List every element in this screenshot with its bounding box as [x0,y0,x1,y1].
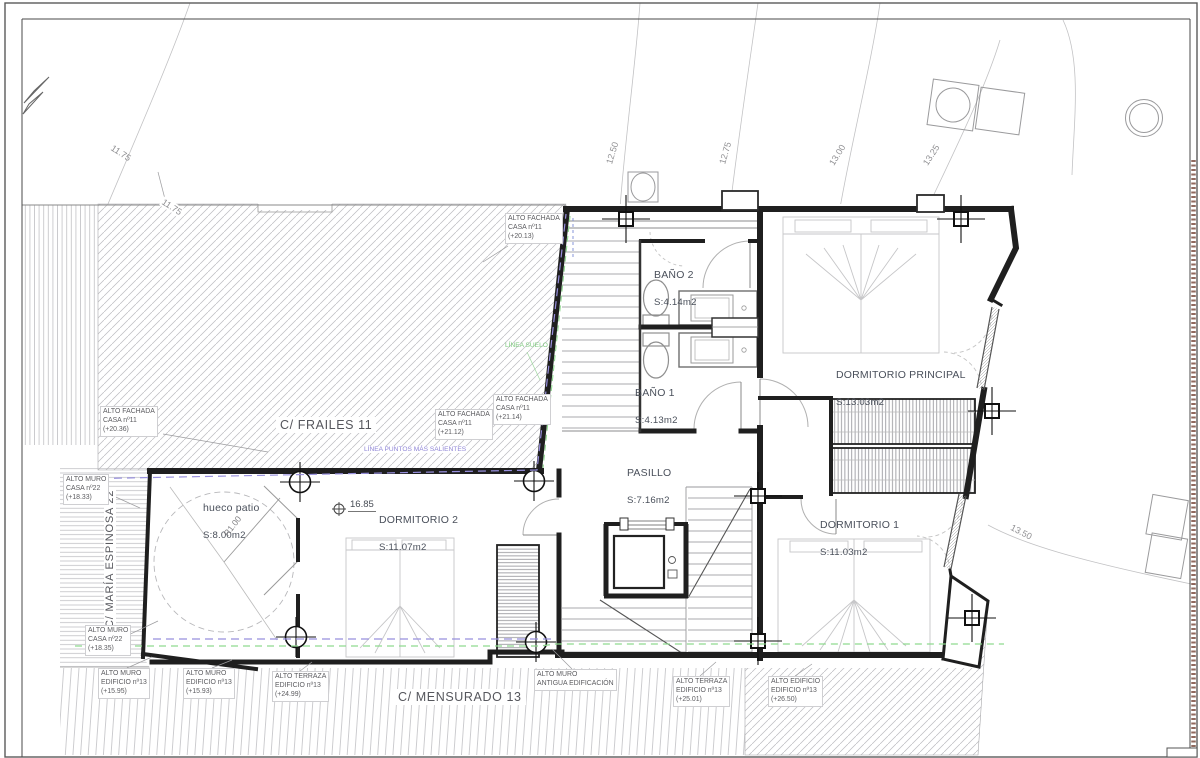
room-area: S:11.07m2 [379,542,458,555]
annotation-alto-muro-1833: ALTO MURO CASA nº22 (+18.33) [63,474,109,505]
floor-level-value: 16.85 [348,499,376,512]
annotation-alto-fachada-2114: ALTO FACHADA CASA nº11 (+21.14) [493,394,551,425]
room-name: DORMITORIO PRINCIPAL [836,369,966,383]
room-name: DORMITORIO 1 [820,519,899,533]
annotation-alto-fachada-2013: ALTO FACHADA CASA nº11 (+20.13) [505,213,563,244]
wall-niche [712,318,758,337]
annotation-alto-fachada-2036: ALTO FACHADA CASA nº11 (+20.36) [100,406,158,437]
street-label-mensurado: C/ MENSURADO 13 [394,689,526,705]
street-label-maria-espinosa: C/ MARÍA ESPINOSA 22 [104,487,116,631]
room-area: S:4.14m2 [654,297,697,310]
room-area: S:4.13m2 [635,415,678,428]
refline-label-suelo: LÍNEA SUELO [505,342,548,349]
room-area: S:13.03m2 [836,397,966,410]
room-area: S:7.16m2 [627,495,671,508]
room-name: PASILLO [627,467,671,481]
annotation-alto-muro-antigua: ALTO MURO ANTIGUA EDIFICACIÓN [534,669,617,691]
plan-linework [0,0,1200,758]
floor-plan-sheet: 11.75 11.75 12.50 12.75 13.00 13.25 13.5… [0,0,1200,758]
annotation-alto-muro-1835: ALTO MURO CASA nº22 (+18.35) [85,625,131,656]
annotation-alto-fachada-2112: ALTO FACHADA CASA nº11 (+21.12) [435,409,493,440]
room-label-pasillo: PASILLO S:7.16m2 [627,453,671,521]
room-label-dormitorio-principal: DORMITORIO PRINCIPAL S:13.03m2 [836,355,966,423]
annotation-alto-edificio-2650: ALTO EDIFICIO EDIFICIO nº13 (+26.50) [768,676,823,707]
room-label-bano1: BAÑO 1 S:4.13m2 [635,373,678,441]
room-name: DORMITORIO 2 [379,514,458,528]
annotation-alto-terraza-2501: ALTO TERRAZA EDIFICIO nº13 (+25.01) [673,676,730,707]
room-label-bano2: BAÑO 2 S:4.14m2 [654,255,697,323]
room-label-dormitorio1: DORMITORIO 1 S:11.03m2 [820,505,899,573]
north-arrow-icon [23,77,49,114]
street-label-frailes: C/ FRAILES 11 [276,417,376,433]
annotation-alto-muro-1595: ALTO MURO EDIFICIO nº13 (+15.95) [98,668,150,699]
room-label-dormitorio2: DORMITORIO 2 S:11.07m2 [379,500,458,568]
refline-label-salientes: LÍNEA PUNTOS MÁS SALIENTES [363,446,467,453]
annotation-alto-muro-1593: ALTO MURO EDIFICIO nº13 (+15.93) [183,668,235,699]
room-name: BAÑO 1 [635,387,678,401]
room-area: S:11.03m2 [820,547,899,560]
room-name: BAÑO 2 [654,269,697,283]
annotation-alto-terraza-2499: ALTO TERRAZA EDIFICIO nº13 (+24.99) [272,671,329,702]
room-name: hueco patio [203,502,260,516]
